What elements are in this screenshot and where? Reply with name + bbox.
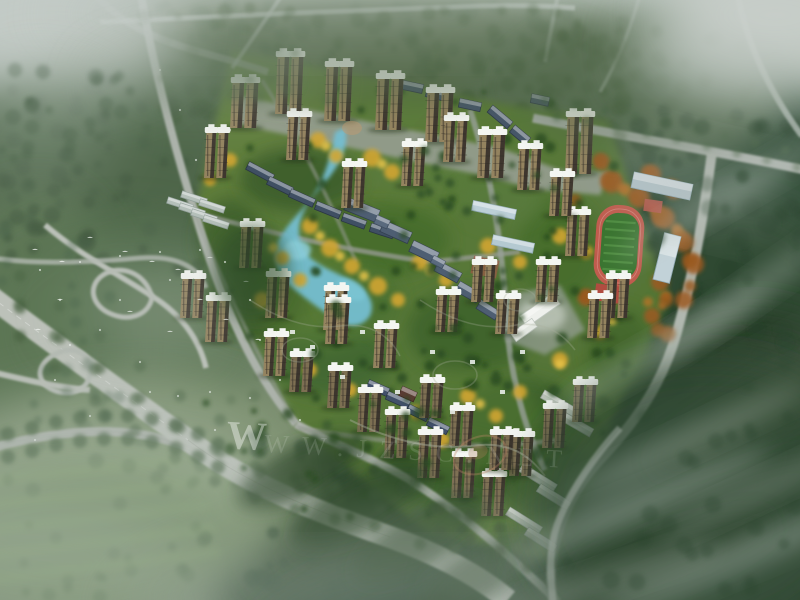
svg-text:W: W	[226, 412, 268, 459]
